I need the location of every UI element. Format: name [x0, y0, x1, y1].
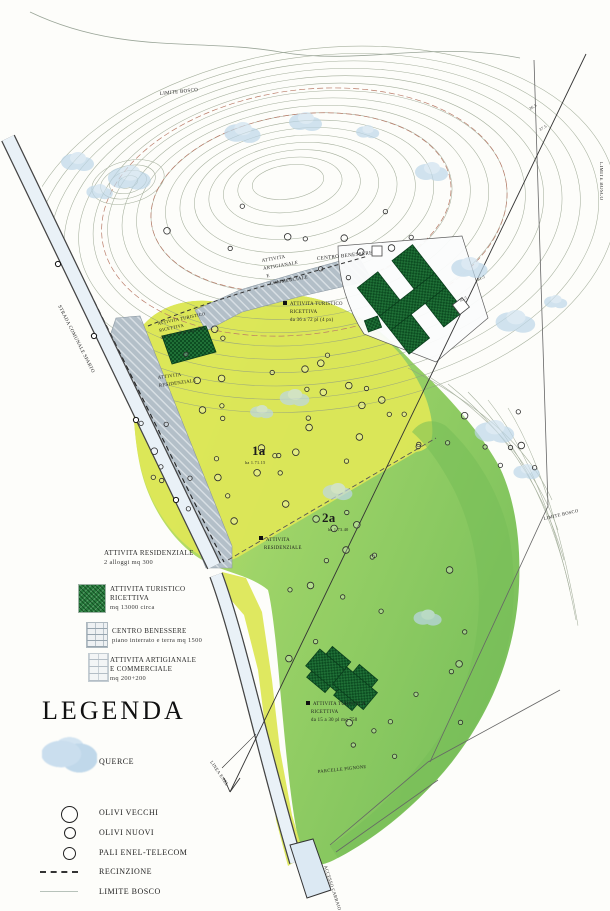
- legend-swatch-benessere: [86, 622, 108, 648]
- legend-item-benessere: CENTRO BENESSERE piano interrato e terra…: [112, 627, 202, 645]
- bullet-square-icon: [259, 536, 263, 540]
- olive-tree-marker: [186, 507, 190, 511]
- contour: [234, 151, 346, 219]
- olive-tree-marker: [359, 402, 366, 409]
- oak-tree-blob: [496, 310, 536, 333]
- olive-tree-marker: [286, 655, 293, 662]
- olive-tree-marker: [218, 375, 225, 382]
- olive-tree-marker: [278, 471, 282, 475]
- olive-tree-marker: [221, 416, 225, 420]
- oak-tree-blob: [61, 152, 94, 171]
- olive-tree-marker: [211, 326, 218, 333]
- oak-tree-blob: [415, 162, 448, 181]
- olive-tree-marker: [307, 582, 314, 589]
- olive-tree-marker: [483, 445, 487, 449]
- svg-text:da 15 a 30 pl mq 750: da 15 a 30 pl mq 750: [311, 718, 358, 723]
- olive-tree-marker: [306, 424, 313, 431]
- olive-tree-marker: [351, 743, 355, 747]
- contour: [250, 160, 326, 204]
- svg-text:RICETTIVA: RICETTIVA: [311, 710, 339, 715]
- olive-tree-marker: [518, 442, 525, 449]
- olive-tree-marker: [215, 474, 222, 481]
- pali-enel-telecom-icon: [63, 847, 76, 860]
- olive-tree-marker: [184, 352, 188, 356]
- zone-2a-label: 2a: [322, 510, 336, 525]
- olivi-vecchi-icon: [61, 806, 78, 823]
- olive-tree-marker: [341, 235, 348, 242]
- zone-1a-label: 1a: [252, 443, 266, 458]
- olive-tree-marker: [324, 558, 328, 562]
- olive-tree-marker: [364, 386, 368, 390]
- svg-text:ATTIVITA TURISTICO: ATTIVITA TURISTICO: [290, 302, 343, 307]
- legend-title: LEGENDA: [42, 696, 186, 726]
- olive-tree-marker: [313, 516, 320, 523]
- olive-tree-marker: [498, 463, 502, 467]
- legend-label-olivi-nuovi: OLIVI NUOVI: [99, 828, 154, 837]
- oak-tree-blob: [224, 122, 260, 143]
- svg-text:E: E: [266, 274, 270, 279]
- olive-tree-marker: [231, 518, 238, 525]
- contour: [202, 132, 385, 250]
- legend-item-residenziale: ATTIVITA RESIDENZIALE 2 alloggi mq 300: [104, 549, 194, 567]
- olive-tree-marker: [228, 246, 232, 250]
- olive-tree-marker: [305, 387, 309, 391]
- olive-tree-marker: [303, 237, 307, 241]
- olive-tree-marker: [293, 449, 300, 456]
- olive-tree-marker: [164, 228, 171, 235]
- olive-tree-marker: [313, 639, 317, 643]
- olive-tree-marker: [341, 595, 345, 599]
- legend-label-limite-bosco: LIMITE BOSCO: [99, 887, 161, 896]
- olive-tree-marker: [320, 389, 327, 396]
- svg-text:ATTIVITA TURISTICA: ATTIVITA TURISTICA: [313, 702, 366, 707]
- olive-tree-marker: [277, 453, 281, 457]
- olive-tree-marker: [387, 412, 391, 416]
- zone-2a-area: ha 1.73.40: [328, 527, 349, 532]
- olive-tree-marker: [282, 501, 289, 508]
- olive-tree-marker: [151, 448, 158, 455]
- olive-tree-marker: [254, 470, 261, 477]
- site-plan-page: LIMITE BOSCO LIMITE BOSCO LIMITE BOSCO S…: [0, 0, 610, 911]
- olive-tree-marker: [270, 370, 274, 374]
- olive-tree-marker: [392, 754, 396, 758]
- oak-tree-blob: [86, 184, 112, 199]
- olive-tree-marker: [159, 465, 163, 469]
- legend-label-olivi-vecchi: OLIVI VECCHI: [99, 808, 158, 817]
- olive-tree-marker: [240, 204, 244, 208]
- olive-tree-marker: [346, 275, 350, 279]
- olive-tree-marker: [516, 410, 520, 414]
- legend-label-querce: QUERCE: [99, 757, 134, 766]
- olive-tree-marker: [220, 404, 224, 408]
- olive-tree-marker: [284, 234, 291, 241]
- bullet-square-icon: [306, 701, 310, 705]
- olive-tree-marker: [288, 588, 292, 592]
- olive-tree-marker: [151, 475, 155, 479]
- olive-tree-marker: [379, 397, 386, 404]
- svg-text:36.5: 36.5: [528, 102, 538, 110]
- olive-tree-marker: [139, 421, 143, 425]
- legend-item-turistico: ATTIVITA TURISTICO RICETTIVA mq 13000 ci…: [110, 585, 185, 612]
- label-limite-bosco-top: LIMITE BOSCO: [160, 88, 199, 97]
- olive-tree-marker: [345, 510, 349, 514]
- olive-tree-marker: [199, 407, 206, 414]
- label-limite-bosco-right: LIMITE BOSCO: [543, 508, 579, 521]
- olive-tree-marker: [446, 567, 453, 574]
- olive-tree-marker: [445, 441, 449, 445]
- svg-text:da 36 a 72 pl (4 px): da 36 a 72 pl (4 px): [290, 318, 334, 323]
- olive-tree-marker: [346, 382, 353, 389]
- label-limite-bosco-edge: LIMITE BOSCO: [598, 162, 603, 201]
- oak-tree-blob: [108, 165, 151, 190]
- legend-item-artigianale: ATTIVITA ARTIGIANALE E COMMERCIALE mq 20…: [110, 656, 196, 683]
- svg-text:RESIDENZIALE: RESIDENZIALE: [264, 546, 302, 551]
- legend-swatch-turistico: [78, 584, 106, 613]
- oak-tree-blob: [544, 295, 567, 308]
- olive-tree-marker: [379, 609, 383, 613]
- svg-text:37.5: 37.5: [538, 123, 548, 131]
- olive-tree-marker: [226, 494, 230, 498]
- olive-tree-marker: [214, 457, 218, 461]
- legend-label-pali: PALI ENEL-TELECOM: [99, 848, 187, 857]
- olive-tree-marker: [160, 478, 164, 482]
- olive-tree-marker: [388, 720, 392, 724]
- olive-tree-marker: [388, 245, 395, 252]
- olive-tree-marker: [344, 459, 348, 463]
- olive-tree-marker: [372, 729, 376, 733]
- label-linea-enel: LINEA ENEL: [209, 760, 230, 787]
- olive-tree-marker: [164, 422, 168, 426]
- olive-tree-marker: [383, 209, 387, 213]
- olive-tree-marker: [302, 366, 309, 373]
- olive-tree-marker: [458, 720, 462, 724]
- recinzione-line-icon: [40, 871, 78, 873]
- limite-bosco-line-icon: [40, 891, 78, 892]
- olive-tree-marker: [318, 360, 325, 367]
- legend-swatch-querce oak-icon: [42, 736, 97, 776]
- svg-text:RICETTIVA: RICETTIVA: [290, 310, 318, 315]
- olive-tree-marker: [356, 434, 363, 441]
- olive-tree-marker: [188, 476, 192, 480]
- olive-tree-marker: [449, 669, 453, 673]
- olive-tree-marker: [402, 412, 406, 416]
- oak-tree-blob: [356, 125, 379, 138]
- zone-1a-area: ha 1.71.15: [245, 460, 266, 465]
- olive-tree-marker: [409, 235, 413, 239]
- oak-tree-blob: [475, 420, 515, 443]
- olive-tree-marker: [414, 692, 418, 696]
- legend-swatch-artigianale: [88, 653, 109, 682]
- olive-tree-marker: [508, 445, 512, 449]
- olive-tree-marker: [221, 336, 225, 340]
- bullet-square-icon: [283, 301, 287, 305]
- olive-tree-marker: [456, 661, 463, 668]
- outbuilding-2: [372, 246, 382, 256]
- olive-tree-marker: [532, 466, 536, 470]
- olive-tree-marker: [372, 553, 376, 557]
- olive-tree-marker: [463, 630, 467, 634]
- olive-tree-marker: [343, 547, 350, 554]
- olive-tree-marker: [318, 267, 322, 271]
- olivi-nuovi-icon: [64, 827, 76, 839]
- olive-tree-marker: [354, 522, 361, 529]
- contour: [218, 141, 365, 234]
- olive-tree-marker: [416, 444, 420, 448]
- olive-tree-marker: [461, 412, 468, 419]
- olive-tree-marker: [325, 353, 329, 357]
- olive-tree-marker: [306, 416, 310, 420]
- legend-label-recinzione: RECINZIONE: [99, 867, 152, 876]
- svg-text:ATTIVITA: ATTIVITA: [266, 538, 290, 543]
